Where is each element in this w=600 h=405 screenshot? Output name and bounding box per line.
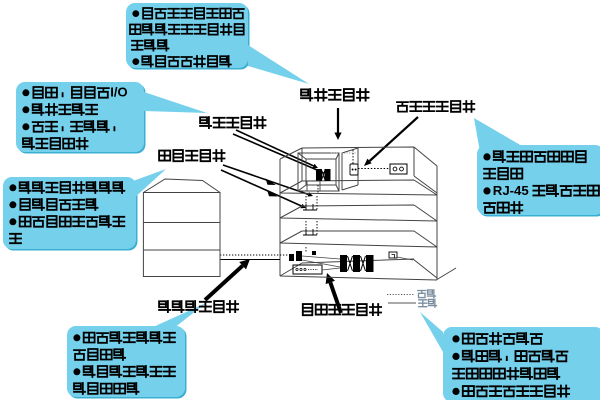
svg-text:RJ-45: RJ-45	[493, 183, 529, 198]
svg-text:I/O: I/O	[110, 85, 127, 100]
